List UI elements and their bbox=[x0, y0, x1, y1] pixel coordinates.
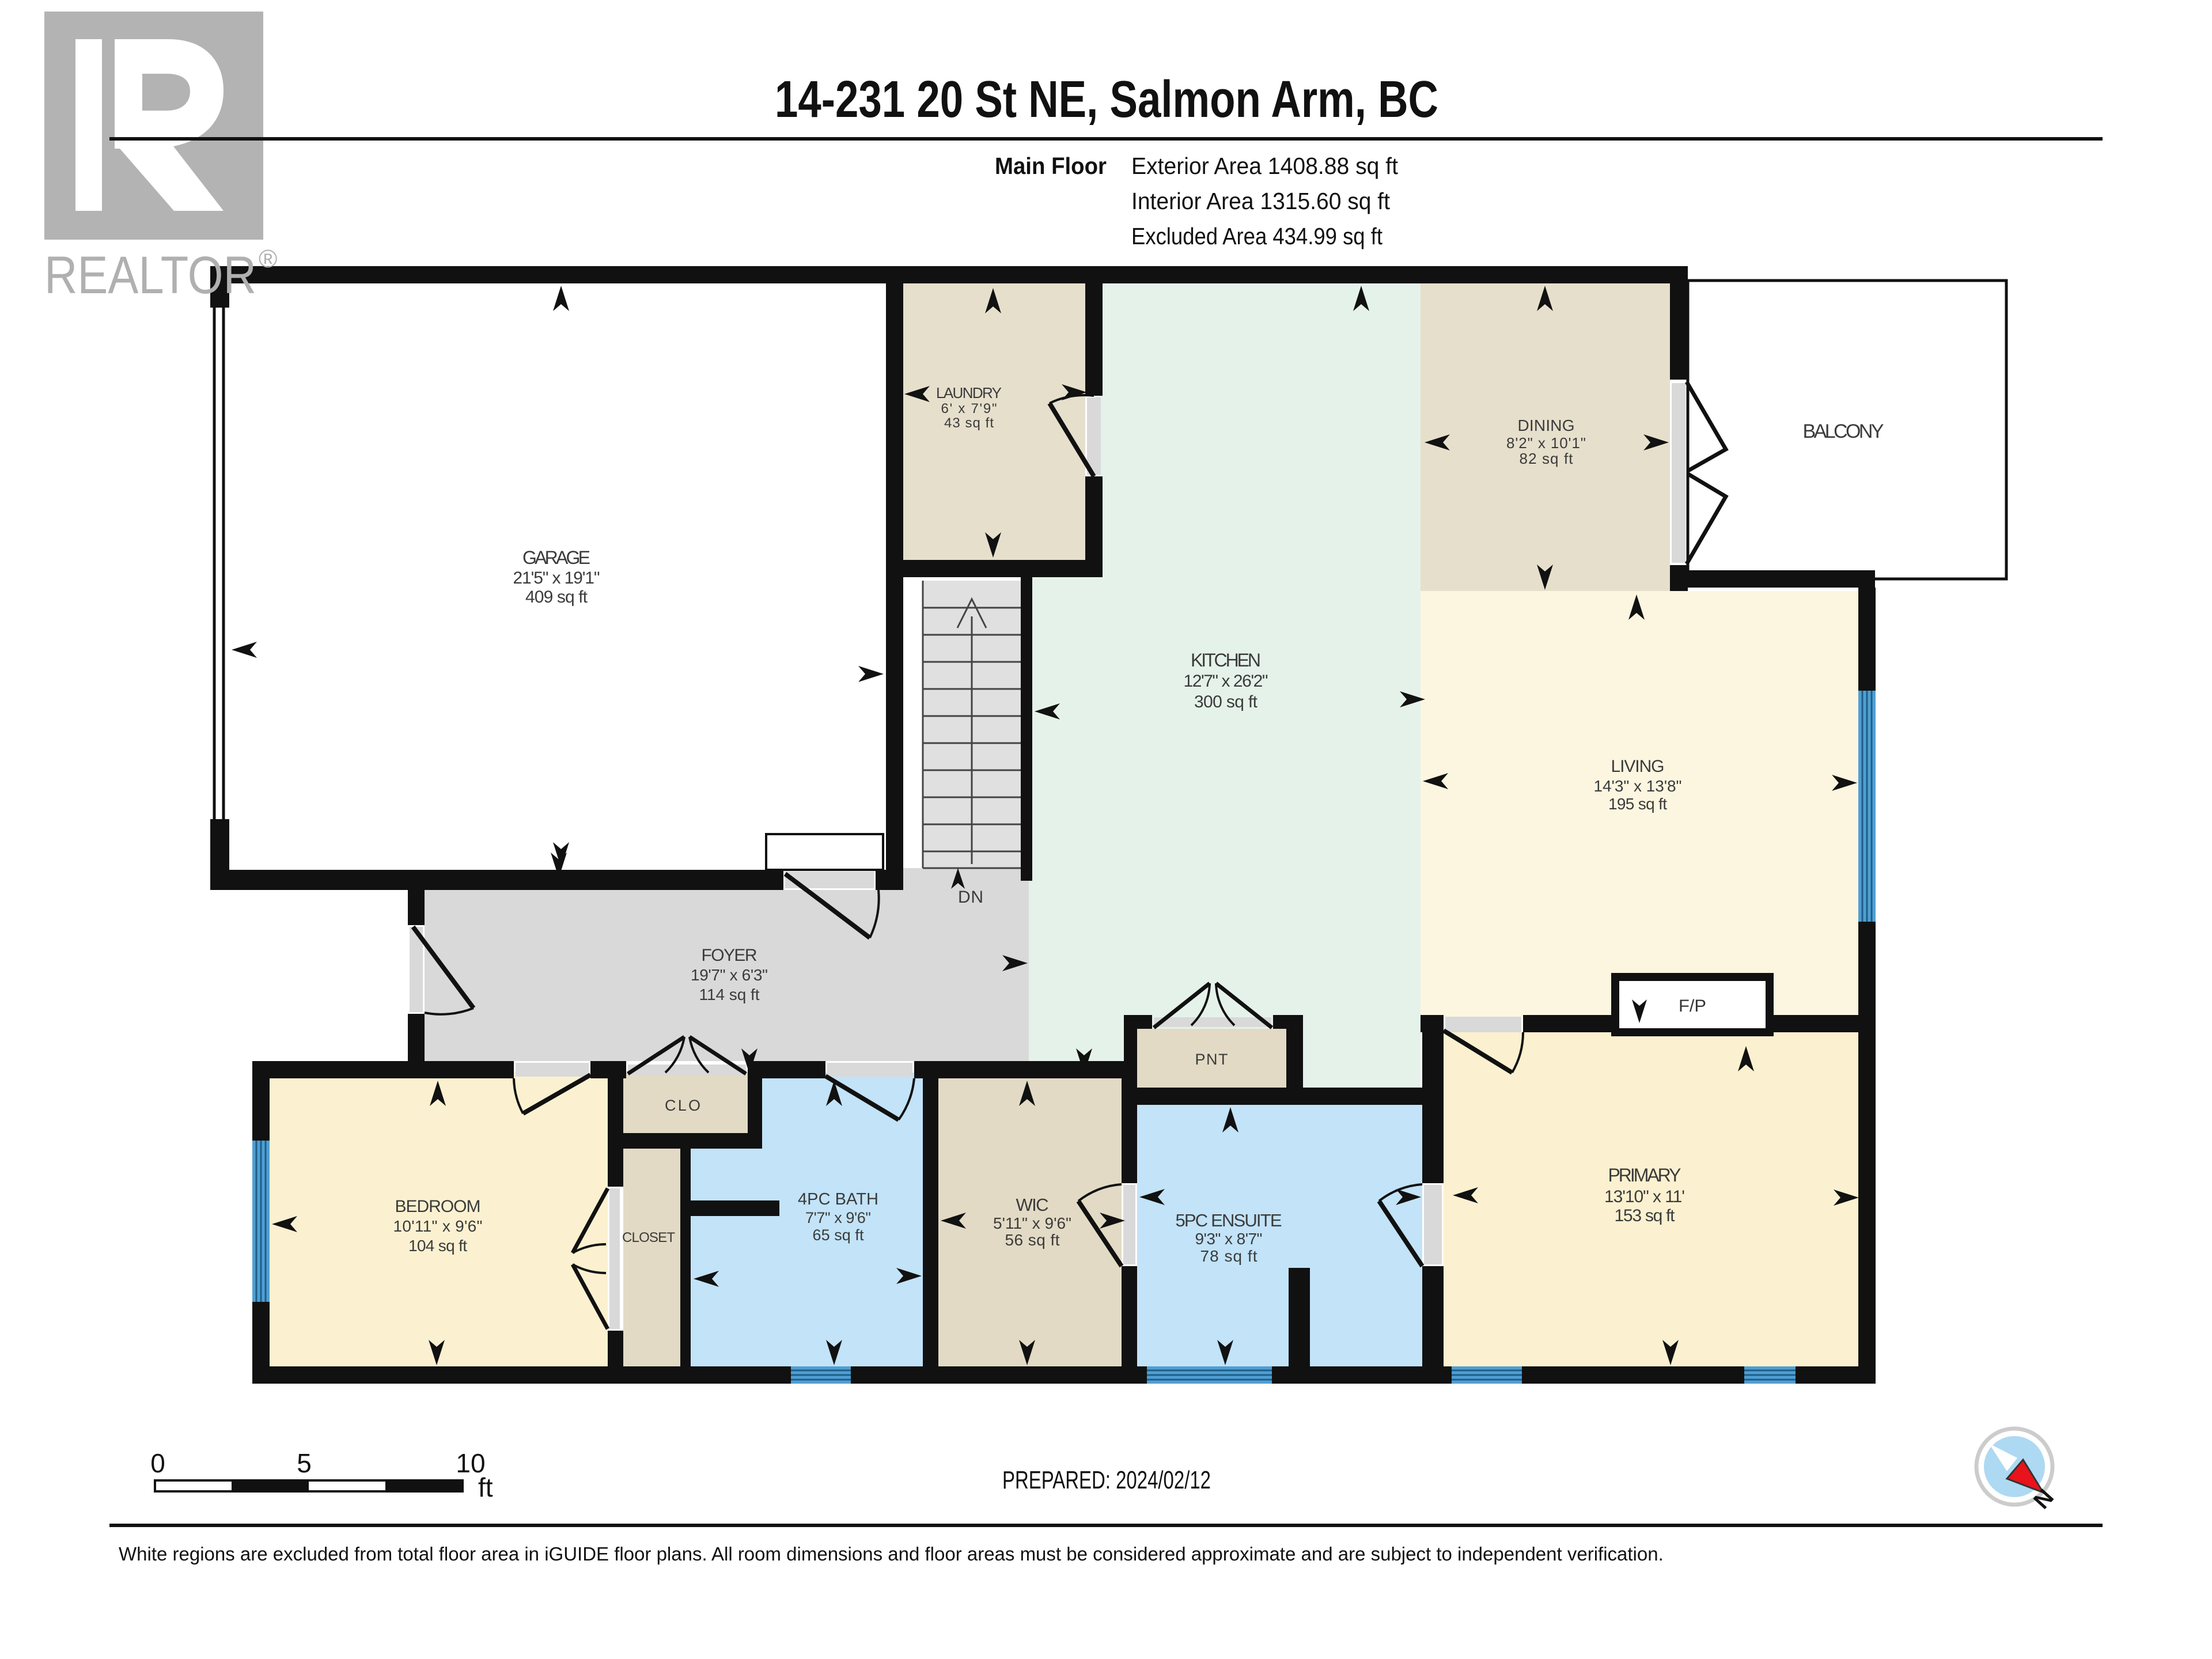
svg-text:12'7" x 26'2": 12'7" x 26'2" bbox=[1184, 672, 1268, 691]
svg-text:7'7" x 9'6": 7'7" x 9'6" bbox=[805, 1209, 871, 1226]
svg-text:5: 5 bbox=[297, 1448, 312, 1478]
svg-text:WIC: WIC bbox=[1016, 1195, 1049, 1215]
svg-text:195 sq ft: 195 sq ft bbox=[1608, 795, 1667, 813]
svg-text:153 sq ft: 153 sq ft bbox=[1615, 1206, 1676, 1225]
svg-text:Interior Area 1315.60 sq ft: Interior Area 1315.60 sq ft bbox=[1131, 188, 1391, 214]
svg-text:4PC BATH: 4PC BATH bbox=[798, 1190, 878, 1209]
svg-text:DINING: DINING bbox=[1518, 416, 1575, 434]
svg-text:PRIMARY: PRIMARY bbox=[1608, 1165, 1681, 1185]
svg-text:PNT: PNT bbox=[1195, 1051, 1228, 1068]
svg-text:F/P: F/P bbox=[1679, 997, 1706, 1016]
svg-text:409 sq ft: 409 sq ft bbox=[525, 588, 588, 607]
svg-text:300 sq ft: 300 sq ft bbox=[1194, 692, 1258, 711]
svg-text:FOYER: FOYER bbox=[702, 946, 757, 965]
svg-text:KITCHEN: KITCHEN bbox=[1191, 650, 1261, 671]
svg-text:43 sq ft: 43 sq ft bbox=[944, 415, 994, 431]
svg-text:9'3" x 8'7": 9'3" x 8'7" bbox=[1195, 1230, 1263, 1248]
svg-text:ft: ft bbox=[478, 1472, 493, 1502]
svg-text:13'10" x 11': 13'10" x 11' bbox=[1604, 1187, 1685, 1206]
svg-text:®: ® bbox=[259, 245, 277, 273]
svg-text:21'5" x 19'1": 21'5" x 19'1" bbox=[513, 569, 600, 588]
svg-text:5'11" x 9'6": 5'11" x 9'6" bbox=[993, 1214, 1071, 1232]
svg-text:BEDROOM: BEDROOM bbox=[395, 1197, 481, 1216]
svg-text:78 sq ft: 78 sq ft bbox=[1200, 1247, 1257, 1265]
svg-text:8'2" x 10'1": 8'2" x 10'1" bbox=[1506, 434, 1586, 452]
svg-text:65 sq ft: 65 sq ft bbox=[813, 1226, 864, 1244]
svg-text:DN: DN bbox=[958, 888, 983, 907]
svg-text:0: 0 bbox=[150, 1448, 165, 1478]
svg-text:LAUNDRY: LAUNDRY bbox=[936, 384, 1002, 402]
svg-text:19'7" x 6'3": 19'7" x 6'3" bbox=[691, 966, 768, 984]
svg-text:Exterior Area 1408.88 sq ft: Exterior Area 1408.88 sq ft bbox=[1131, 153, 1399, 179]
svg-text:PREPARED: 2024/02/12: PREPARED: 2024/02/12 bbox=[1002, 1466, 1211, 1494]
svg-text:104 sq ft: 104 sq ft bbox=[408, 1237, 467, 1255]
svg-text:REALTOR: REALTOR bbox=[44, 246, 256, 305]
svg-text:114 sq ft: 114 sq ft bbox=[699, 986, 760, 1003]
svg-text:Main Floor: Main Floor bbox=[995, 153, 1107, 179]
svg-text:CLOSET: CLOSET bbox=[622, 1230, 675, 1245]
svg-text:Excluded Area 434.99 sq ft: Excluded Area 434.99 sq ft bbox=[1131, 223, 1383, 249]
svg-text:14-231 20 St NE, Salmon Arm, B: 14-231 20 St NE, Salmon Arm, BC bbox=[775, 71, 1438, 128]
svg-text:14'3" x 13'8": 14'3" x 13'8" bbox=[1594, 777, 1682, 795]
svg-text:82 sq ft: 82 sq ft bbox=[1520, 450, 1574, 467]
svg-text:56 sq ft: 56 sq ft bbox=[1005, 1231, 1060, 1249]
svg-text:5PC ENSUITE: 5PC ENSUITE bbox=[1176, 1210, 1282, 1230]
svg-text:BALCONY: BALCONY bbox=[1803, 421, 1884, 442]
svg-text:GARAGE: GARAGE bbox=[522, 547, 590, 568]
svg-text:CLO: CLO bbox=[665, 1097, 700, 1114]
svg-text:White regions are excluded fro: White regions are excluded from total fl… bbox=[119, 1543, 1664, 1565]
svg-text:6' x 7'9": 6' x 7'9" bbox=[941, 401, 997, 416]
svg-text:10'11" x 9'6": 10'11" x 9'6" bbox=[393, 1217, 483, 1235]
svg-text:LIVING: LIVING bbox=[1611, 757, 1665, 776]
